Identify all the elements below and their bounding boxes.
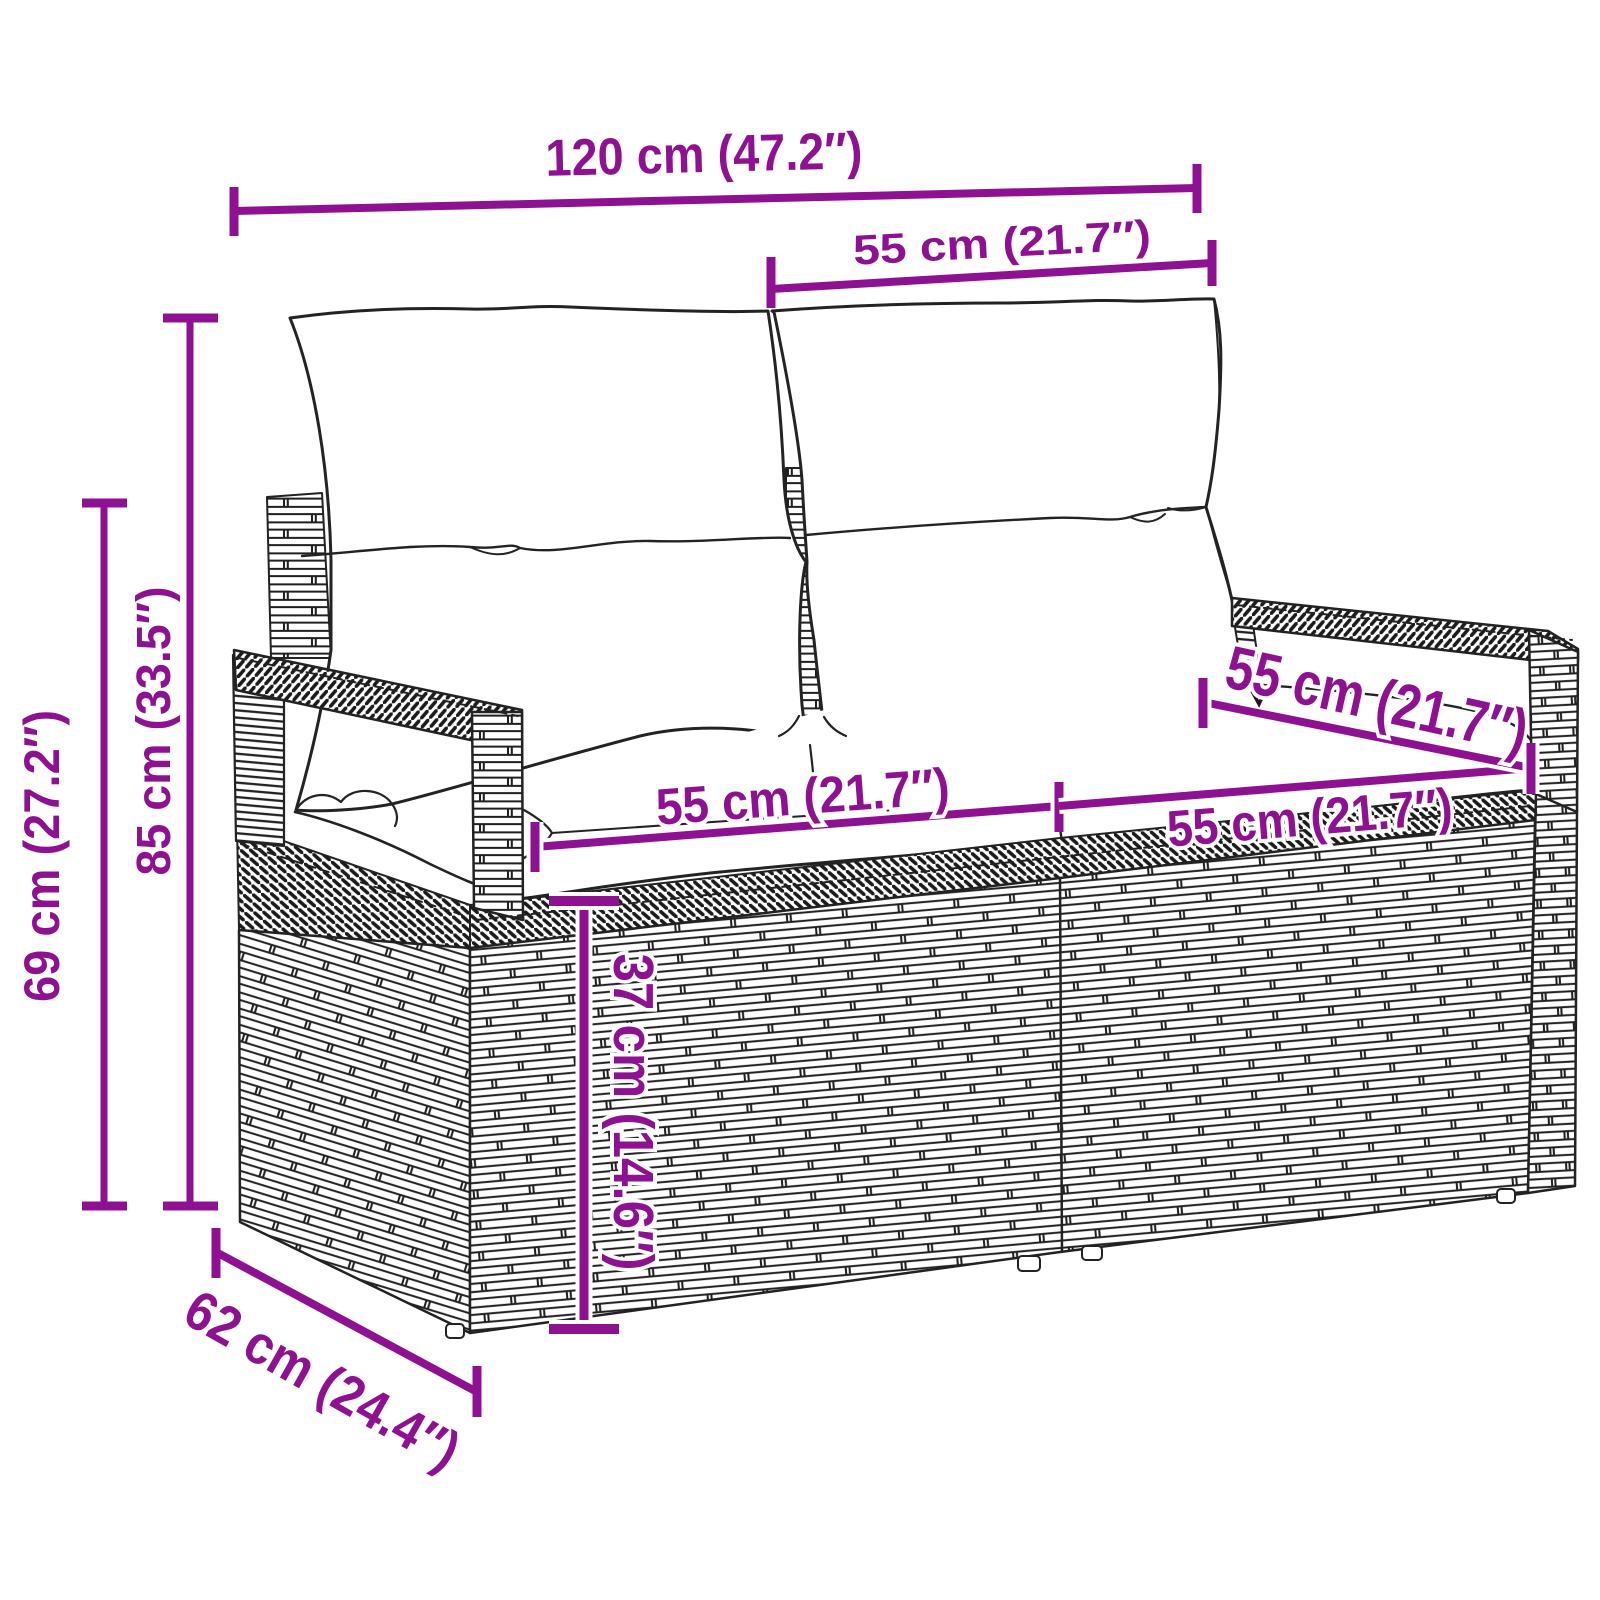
svg-text:69 cm (27.2″): 69 cm (27.2″) xyxy=(14,710,70,1002)
svg-text:37 cm (14.6″): 37 cm (14.6″) xyxy=(601,954,665,1271)
svg-text:85 cm (33.5″): 85 cm (33.5″) xyxy=(128,587,181,876)
svg-text:120 cm (47.2″): 120 cm (47.2″) xyxy=(545,122,863,188)
